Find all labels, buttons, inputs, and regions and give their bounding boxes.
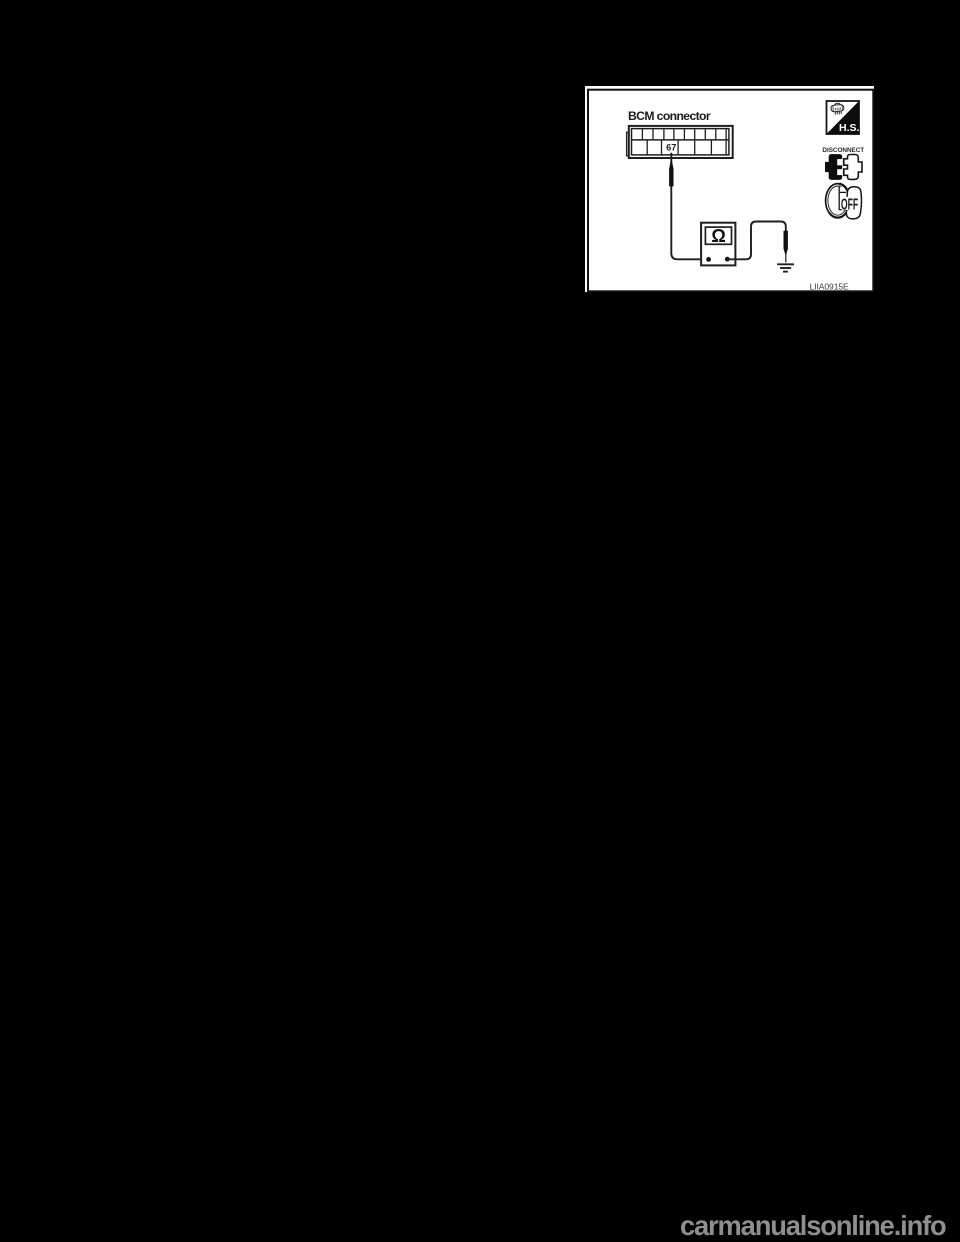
svg-text:Ω: Ω (711, 226, 725, 246)
svg-text:OFF: OFF (841, 196, 859, 213)
svg-text:LIIA0915E: LIIA0915E (810, 281, 849, 291)
svg-text:DISCONNECT: DISCONNECT (822, 147, 864, 154)
svg-text:67: 67 (666, 142, 676, 152)
svg-text:BCM connector: BCM connector (628, 109, 711, 123)
svg-text:H.S.: H.S. (839, 122, 860, 134)
